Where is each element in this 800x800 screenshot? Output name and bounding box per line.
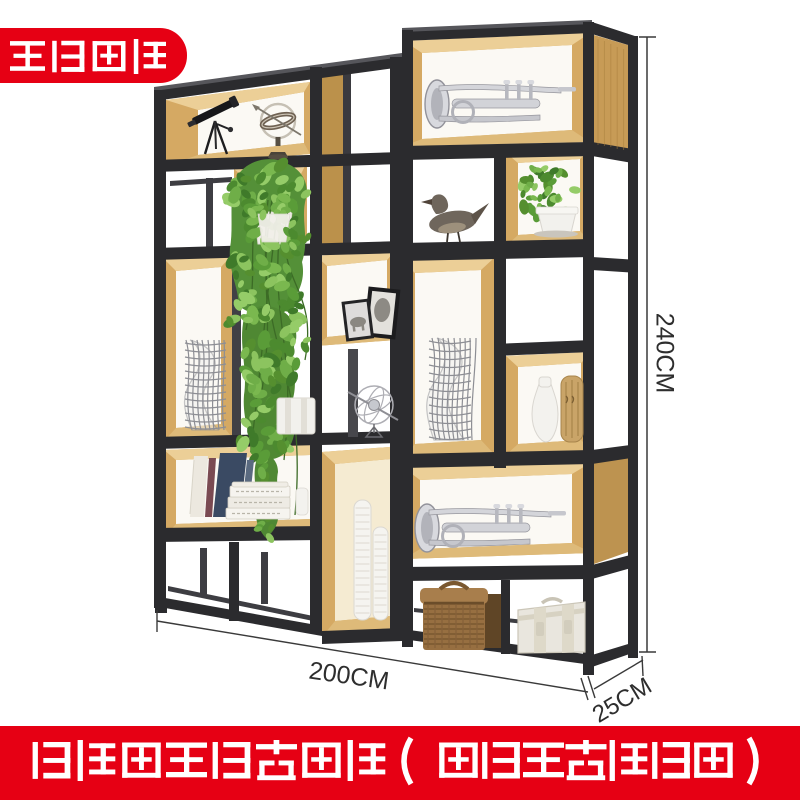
svg-text:240CM: 240CM — [650, 313, 678, 394]
